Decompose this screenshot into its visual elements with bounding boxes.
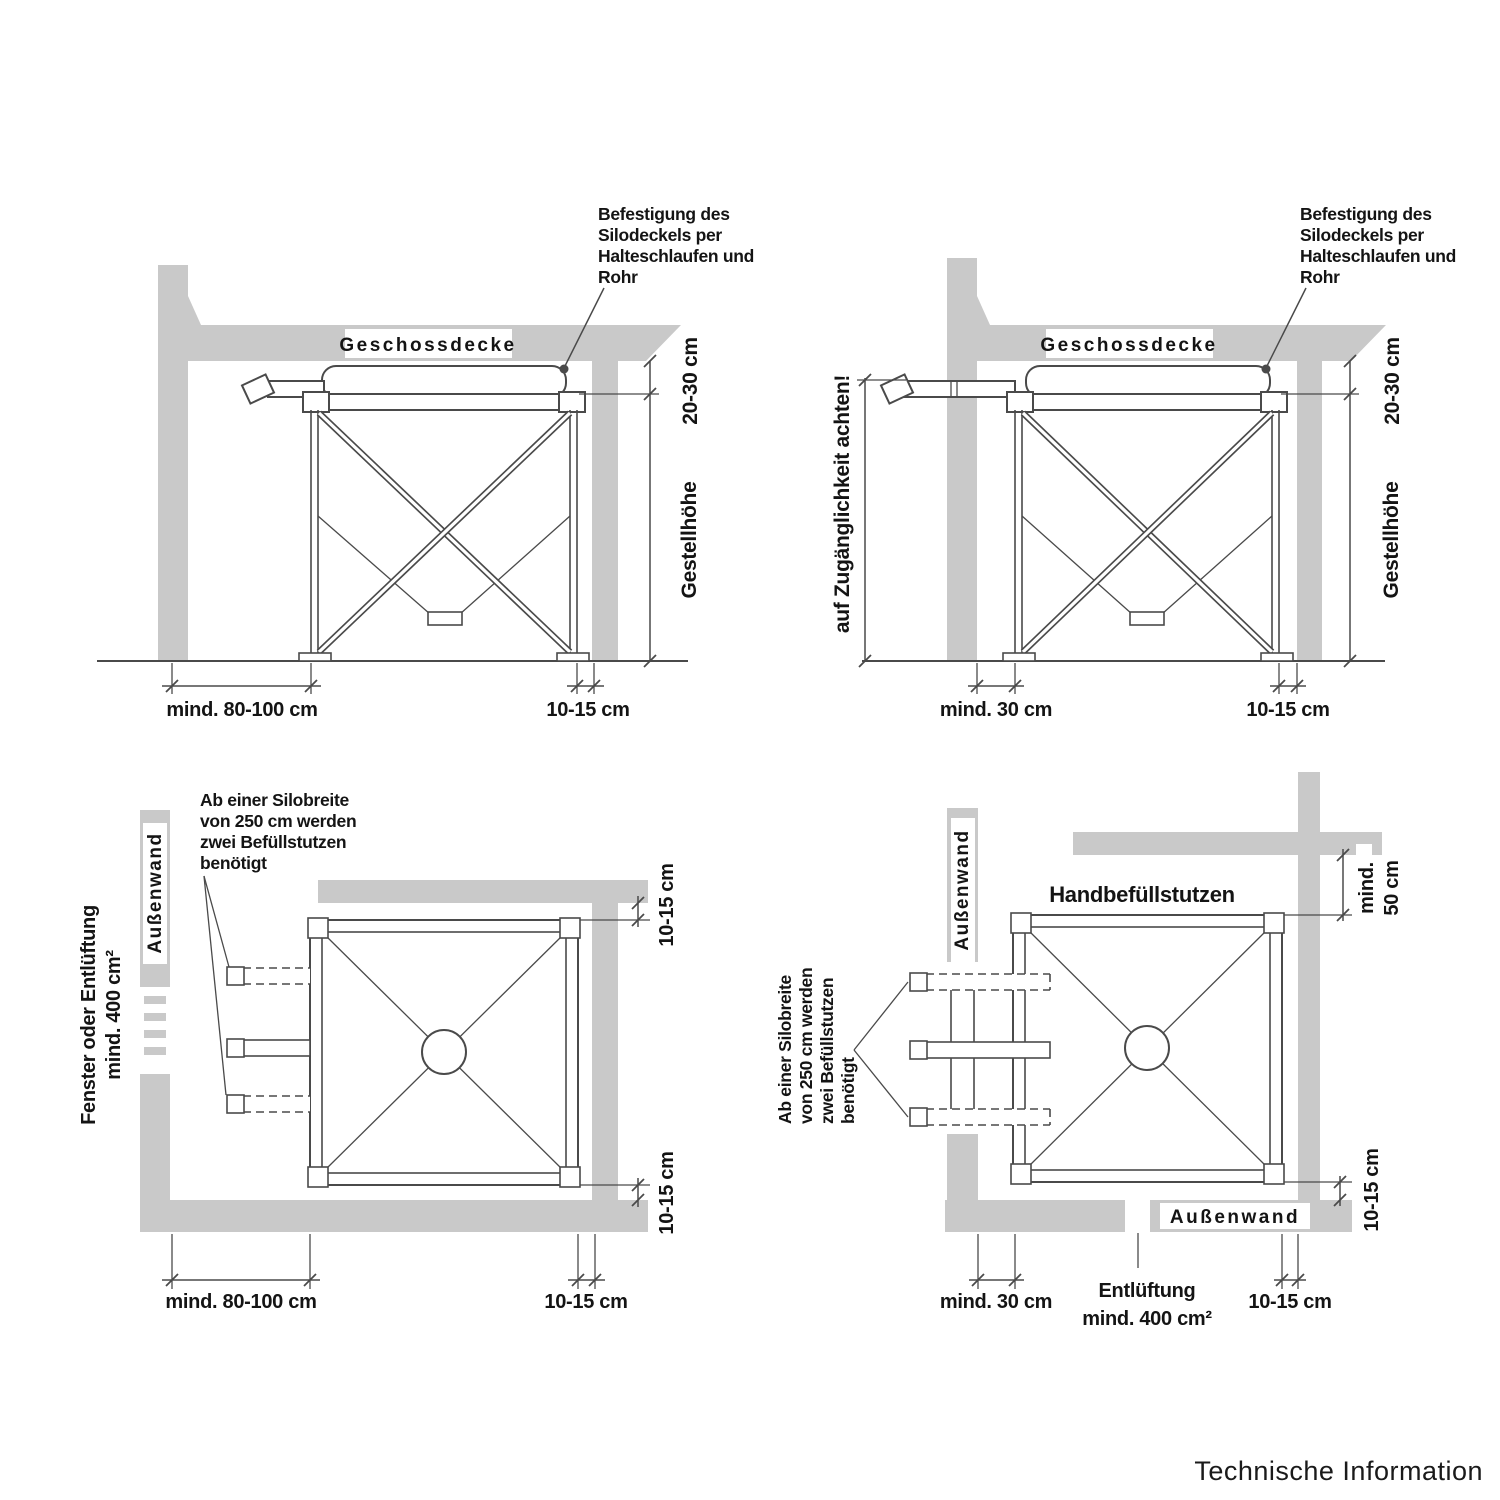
top-wall [1073, 832, 1382, 855]
fill-pipe-nozzle [881, 374, 913, 403]
dim-gap-top: 20-30 cm [679, 337, 702, 425]
dim-side-gap: 10-15 cm [1248, 1291, 1331, 1313]
labels: Befestigung des Silodeckels per Haltesch… [831, 204, 1456, 721]
outlet [1130, 612, 1164, 625]
corner-block [1011, 1164, 1031, 1184]
silo-side-view [242, 365, 589, 662]
dim-wall-distance: mind. 30 cm [940, 699, 1052, 721]
dim-frame-height: Gestellhöhe [678, 482, 701, 599]
fill-stub-middle [227, 1039, 310, 1057]
window-louver [144, 1013, 166, 1021]
fixing-note-line: Rohr [598, 267, 638, 287]
labels: Befestigung des Silodeckels per Haltesch… [166, 204, 754, 721]
stub-note-line: zwei Befüllstutzen [817, 978, 837, 1124]
fixing-note-line: Halteschlaufen und [598, 246, 754, 266]
stub-note-leader [204, 876, 226, 1095]
center-outlet [422, 1030, 466, 1074]
right-wall-column [592, 903, 618, 1200]
top-wall [318, 880, 648, 903]
wall-section [947, 258, 977, 661]
fixing-note-line: Rohr [1300, 267, 1340, 287]
dim-side-gap: 10-15 cm [544, 1291, 627, 1313]
stub-note-line: Ab einer Silobreite [200, 790, 349, 810]
ceiling-label: Geschossdecke [339, 335, 516, 356]
stub-note-leader [854, 1050, 908, 1117]
wall-ceiling-fillet [977, 296, 990, 325]
foot-right [557, 653, 589, 661]
dim-wall-distance: mind. 80-100 cm [166, 699, 317, 721]
right-wall-column [1298, 772, 1320, 1232]
panel-side-view-through-wall: Geschossdecke [831, 204, 1456, 721]
wall-ceiling-fillet [188, 296, 201, 325]
stub-note-line: von 250 cm werden [796, 968, 816, 1124]
fill-pipe-nozzle [242, 374, 274, 403]
corner-block [560, 918, 580, 938]
frame-corner-left [303, 392, 329, 412]
dim-side-gap: 10-15 cm [1246, 699, 1329, 721]
wall-label-bottom: Außenwand [1170, 1207, 1300, 1228]
wall-section [158, 265, 188, 661]
silo-lid [1026, 366, 1270, 397]
fixing-note-line: Befestigung des [598, 204, 730, 224]
fixing-note-line: Silodeckels per [1300, 225, 1424, 245]
dim-side-gap: 10-15 cm [546, 699, 629, 721]
stub-note-leader [204, 876, 229, 967]
corner-block [308, 1167, 328, 1187]
silo-side-view [881, 365, 1293, 662]
building-structure: Geschossdecke [97, 265, 688, 661]
window-vent-note-line: mind. 400 cm² [103, 950, 125, 1080]
frame-corner-right [559, 392, 585, 412]
panel-plan-view-window-vent: Außenwand [78, 790, 678, 1313]
outlet [428, 612, 462, 625]
dim-bottom-gap: 10-15 cm [1361, 1148, 1383, 1231]
stub-note-leader [854, 982, 908, 1050]
technical-information-page: Geschossdecke [0, 0, 1500, 1500]
frame-corner-right [1261, 392, 1287, 412]
dim-bottom-gap: 10-15 cm [656, 1151, 678, 1234]
accessibility-note: auf Zugänglichkeit achten! [831, 375, 854, 633]
vent-opening [1125, 1200, 1150, 1232]
wall-label: Außenwand [145, 832, 166, 953]
fill-stub-middle [910, 1041, 1050, 1059]
dim-frame-height: Gestellhöhe [1380, 482, 1403, 599]
bottom-wall [140, 1200, 648, 1232]
foot-left [299, 653, 331, 661]
silo-installation-diagram: Geschossdecke [0, 0, 1500, 1500]
dim-wall-distance: mind. 80-100 cm [165, 1291, 316, 1313]
window-louver [144, 996, 166, 1004]
wall-column [592, 361, 618, 661]
vent-note-line: mind. 400 cm² [1082, 1308, 1212, 1330]
fixing-note-line: Befestigung des [1300, 204, 1432, 224]
silo-plan-view [854, 913, 1284, 1184]
wall-label: Außenwand [952, 829, 973, 950]
corner-block [1264, 913, 1284, 933]
window-louver [144, 1047, 166, 1055]
foot-left [1003, 653, 1035, 661]
window-vent-note-line: Fenster oder Entlüftung [78, 905, 100, 1125]
fixing-note-line: Halteschlaufen und [1300, 246, 1456, 266]
fixing-note-line: Silodeckels per [598, 225, 722, 245]
corner-block [560, 1167, 580, 1187]
stub-note-line: Ab einer Silobreite [775, 975, 795, 1124]
corner-block [1264, 1164, 1284, 1184]
window-louver [144, 1030, 166, 1038]
corner-block [1011, 913, 1031, 933]
outer-wall-lower [947, 1134, 978, 1200]
dim-gap-top: 20-30 cm [1381, 337, 1404, 425]
vent-note-line: Entlüftung [1099, 1280, 1196, 1302]
stub-note-line: zwei Befüllstutzen [200, 832, 346, 852]
silo-lid [322, 366, 566, 397]
frame-top-rail [311, 394, 577, 410]
fill-stub-bottom [227, 1095, 310, 1113]
fill-stub-top [227, 967, 310, 985]
panel-plan-view-hand-fill: Außenwand Außenwand [775, 772, 1403, 1330]
stub-note-line: benötigt [200, 853, 267, 873]
corner-block [308, 918, 328, 938]
frame-corner-left [1007, 392, 1033, 412]
hand-fill-title: Handbefüllstutzen [1049, 882, 1235, 907]
fill-pipe [903, 381, 1015, 397]
lid-fixing-point [560, 365, 569, 374]
stub-note-line: von 250 cm werden [200, 811, 356, 831]
silo-plan-view [204, 876, 580, 1187]
wall-column [1297, 361, 1322, 661]
fill-stub-bottom [910, 1108, 1050, 1126]
wall-notch [1356, 844, 1372, 856]
fill-stub-top [910, 973, 1050, 991]
building-structure: Geschossdecke [862, 258, 1386, 661]
dim-wall-gap-line: 50 cm [1381, 860, 1403, 915]
lid-fixing-point [1262, 365, 1271, 374]
dim-wall-gap-line: mind. [1356, 862, 1378, 914]
stub-note-line: benötigt [838, 1057, 858, 1124]
page-footer-title: Technische Information [1194, 1456, 1483, 1486]
dim-wall-distance: mind. 30 cm [940, 1291, 1052, 1313]
panel-side-view-wall-mounted: Geschossdecke [97, 204, 754, 721]
frame-top-rail [1015, 394, 1279, 410]
foot-right [1261, 653, 1293, 661]
dim-top-gap: 10-15 cm [656, 863, 678, 946]
center-outlet [1125, 1026, 1169, 1070]
ceiling-label: Geschossdecke [1040, 335, 1217, 356]
